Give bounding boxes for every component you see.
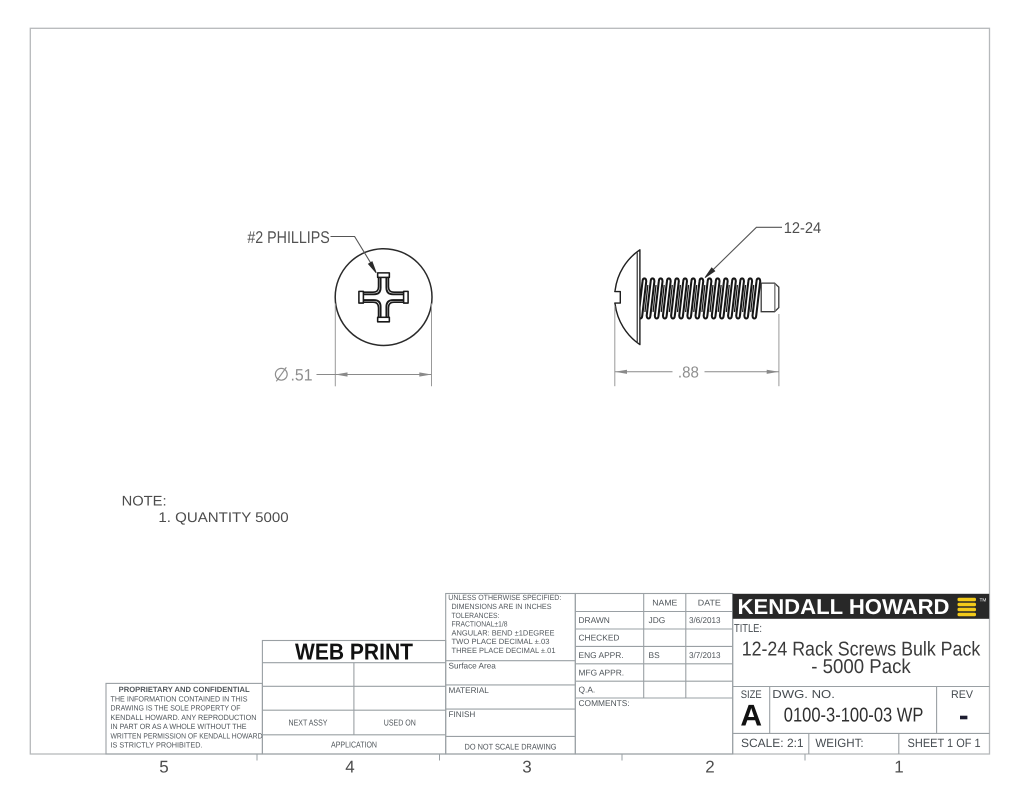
svg-text:USED ON: USED ON [384,718,416,728]
svg-text:DIMENSIONS ARE IN INCHES: DIMENSIONS ARE IN INCHES [452,602,552,611]
svg-text:CHECKED: CHECKED [579,633,620,643]
svg-text:0100-3-100-03 WP: 0100-3-100-03 WP [784,705,924,727]
svg-text:TITLE:: TITLE: [734,623,762,635]
svg-text:A: A [740,699,762,732]
svg-text:4: 4 [345,758,354,777]
svg-text:TM: TM [980,598,987,604]
svg-text:TOLERANCES:: TOLERANCES: [452,611,500,620]
svg-text:WEIGHT:: WEIGHT: [815,736,863,750]
svg-text:3/6/2013: 3/6/2013 [689,615,721,625]
svg-text:NEXT ASSY: NEXT ASSY [289,718,328,728]
svg-text:- 5000 Pack: - 5000 Pack [811,656,911,678]
svg-text:KENDALL HOWARD: KENDALL HOWARD [738,595,950,619]
svg-text:FRACTIONAL±1/8: FRACTIONAL±1/8 [452,620,508,629]
svg-text:SHEET 1 OF 1: SHEET 1 OF 1 [908,736,981,750]
svg-text:1. QUANTITY 5000: 1. QUANTITY 5000 [158,509,289,525]
svg-text:THE INFORMATION CONTAINED IN T: THE INFORMATION CONTAINED IN THIS [111,694,248,703]
svg-text:MATERIAL: MATERIAL [449,686,490,695]
svg-text:DRAWN: DRAWN [579,615,610,625]
svg-text:.88: .88 [678,365,699,382]
svg-text:UNLESS OTHERWISE SPECIFIED:: UNLESS OTHERWISE SPECIFIED: [448,593,561,602]
svg-text:5: 5 [159,758,168,777]
svg-text:ANGULAR: BEND ±1DEGREE: ANGULAR: BEND ±1DEGREE [452,628,555,637]
svg-text:THREE PLACE DECIMAL ±.01: THREE PLACE DECIMAL ±.01 [452,646,556,655]
svg-text:.51: .51 [291,366,313,384]
svg-text:IS STRICTLY PROHIBITED.: IS STRICTLY PROHIBITED. [111,741,203,750]
svg-text:3: 3 [522,758,531,777]
svg-text:Q.A.: Q.A. [579,684,596,694]
svg-text:KENDALL HOWARD. ANY REPRODUCT: KENDALL HOWARD. ANY REPRODUCTION [111,713,257,722]
svg-text:NAME: NAME [652,598,677,608]
svg-text:DO NOT SCALE DRAWING: DO NOT SCALE DRAWING [465,743,557,752]
svg-text:FINISH: FINISH [449,710,476,719]
svg-text:APPLICATION: APPLICATION [331,740,377,750]
svg-text:DRAWING IS THE SOLE PROPERTY O: DRAWING IS THE SOLE PROPERTY OF [111,704,241,713]
svg-text:IN PART OR AS A WHOLE WITHOUT: IN PART OR AS A WHOLE WITHOUT THE [111,722,247,731]
svg-text:12-24: 12-24 [784,220,822,237]
svg-text:DWG. NO.: DWG. NO. [772,689,835,701]
svg-text:SCALE: 2:1: SCALE: 2:1 [741,736,804,750]
svg-text:COMMENTS:: COMMENTS: [579,698,630,708]
svg-text:2: 2 [705,758,714,777]
svg-text:TWO PLACE DECIMAL ±.03: TWO PLACE DECIMAL ±.03 [452,637,550,646]
svg-text:3/7/2013: 3/7/2013 [689,650,721,660]
svg-text:JDG: JDG [649,615,666,625]
svg-text:DATE: DATE [698,598,721,608]
svg-text:BS: BS [649,650,661,660]
svg-text:PROPRIETARY AND CONFIDENTIAL: PROPRIETARY AND CONFIDENTIAL [119,685,250,694]
svg-text:#2 PHILLIPS: #2 PHILLIPS [247,228,329,247]
svg-text:WRITTEN PERMISSION OF KENDALL: WRITTEN PERMISSION OF KENDALL HOWARD [111,731,263,740]
svg-text:Surface Area: Surface Area [449,662,497,671]
svg-text:NOTE:: NOTE: [122,493,167,509]
svg-text:WEB PRINT: WEB PRINT [295,639,413,665]
svg-text:REV: REV [951,689,974,701]
svg-text:MFG APPR.: MFG APPR. [579,668,625,678]
svg-text:ENG APPR.: ENG APPR. [579,650,624,660]
svg-text:1: 1 [894,758,903,777]
